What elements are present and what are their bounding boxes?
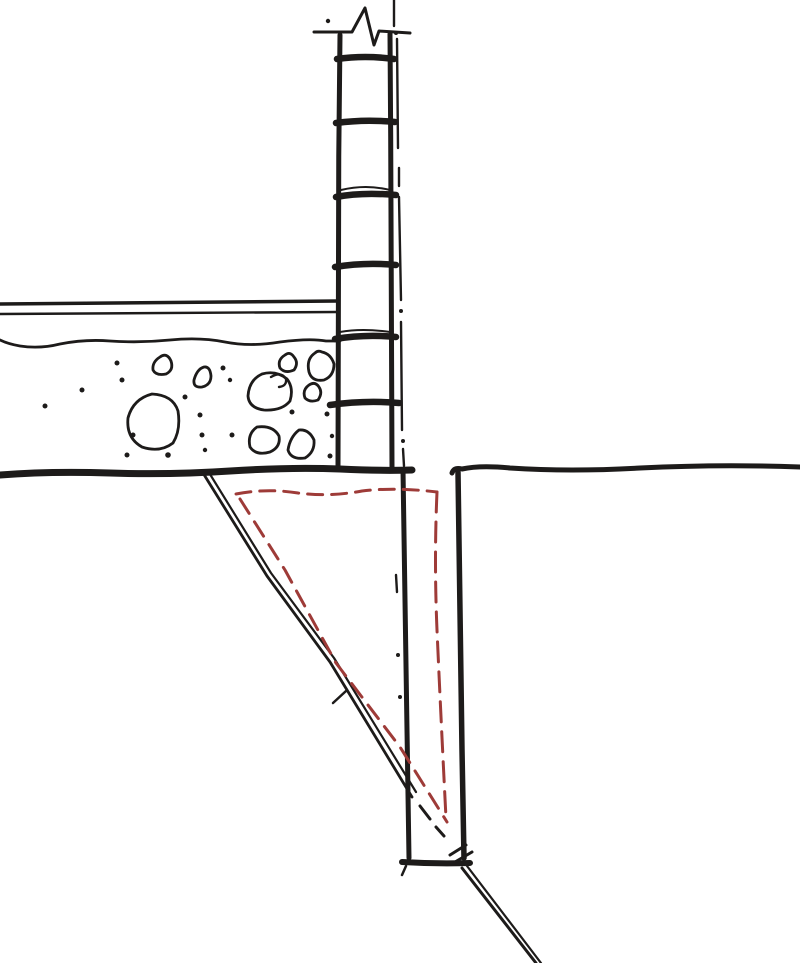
aggregate-stone (308, 351, 334, 380)
aggregate-dot (290, 410, 295, 415)
masonry-course-line (336, 194, 396, 197)
aggregate-stone (194, 367, 211, 387)
aggregate-dot (228, 378, 232, 382)
grade-line-right (452, 466, 800, 473)
centerline-dot (394, 31, 398, 35)
excavation-slope-line-outer (203, 473, 412, 797)
centerline-dot (396, 653, 400, 657)
aggregate-dot (183, 395, 188, 400)
masonry-course-line (335, 264, 396, 267)
aggregate-stone (153, 355, 172, 374)
centerline-segment (399, 197, 401, 300)
aggregate-dot (198, 413, 203, 418)
masonry-course-line (337, 57, 394, 59)
red-excavation-outline-top (236, 489, 437, 494)
slab-top-line (0, 301, 338, 304)
aggregate-dot (230, 433, 235, 438)
aggregate-dot (131, 433, 136, 438)
gravel-top-wavy-line (0, 339, 340, 347)
centerline-dot (401, 439, 405, 443)
excavation-slope-tick (333, 691, 346, 703)
lower-slope-line-outer (462, 868, 536, 963)
aggregate-stone (279, 353, 296, 371)
excavation-slope-dash (436, 827, 444, 836)
footing-bottom-line (402, 862, 470, 863)
aggregate-stone-curl (271, 374, 286, 387)
centerline-dot (398, 695, 402, 699)
aggregate-dot (221, 366, 226, 371)
aggregate-stone (288, 430, 314, 458)
masonry-course-line (330, 402, 399, 405)
aggregate-stone (249, 427, 279, 454)
masonry-course-line (336, 121, 395, 123)
centerline-segment (401, 322, 402, 430)
aggregate-stone (128, 394, 179, 449)
break-line-dot (326, 19, 330, 23)
slab-top-line-2 (0, 312, 337, 314)
red-excavation-outline-right (436, 492, 447, 818)
aggregate-dot (125, 453, 130, 458)
foundation-wall-right-edge (458, 472, 464, 858)
aggregate-dot (115, 361, 120, 366)
aggregate-dot (200, 433, 205, 438)
aggregate-dot (328, 454, 333, 459)
aggregate-dot (80, 388, 85, 393)
masonry-course-echo (340, 330, 390, 332)
aggregate-dot (120, 378, 125, 383)
centerline-segment (403, 449, 404, 466)
break-line (314, 8, 410, 45)
aggregate-dot (203, 448, 207, 452)
masonry-course-line (335, 336, 396, 339)
centerline-segment (396, 575, 397, 592)
footing-left-tick (402, 866, 406, 875)
centerline-segment (397, 39, 398, 148)
aggregate-dot (165, 452, 171, 458)
centerline-dot (399, 309, 403, 313)
lower-slope-line-inner (467, 866, 541, 963)
excavation-slope-line-inner (208, 471, 416, 792)
red-excavation-outline-hypotenuse (240, 499, 447, 822)
grade-line-left (0, 468, 412, 475)
aggregate-dot (330, 434, 334, 438)
sketch-page (0, 0, 800, 963)
foundation-wall-section-sketch (0, 0, 800, 963)
excavation-slope-dash (420, 806, 430, 819)
aggregate-dot (325, 412, 330, 417)
masonry-course-echo (341, 187, 390, 190)
foundation-wall-left-edge (403, 470, 409, 858)
aggregate-dot (43, 404, 48, 409)
aggregate-stone (304, 383, 321, 401)
